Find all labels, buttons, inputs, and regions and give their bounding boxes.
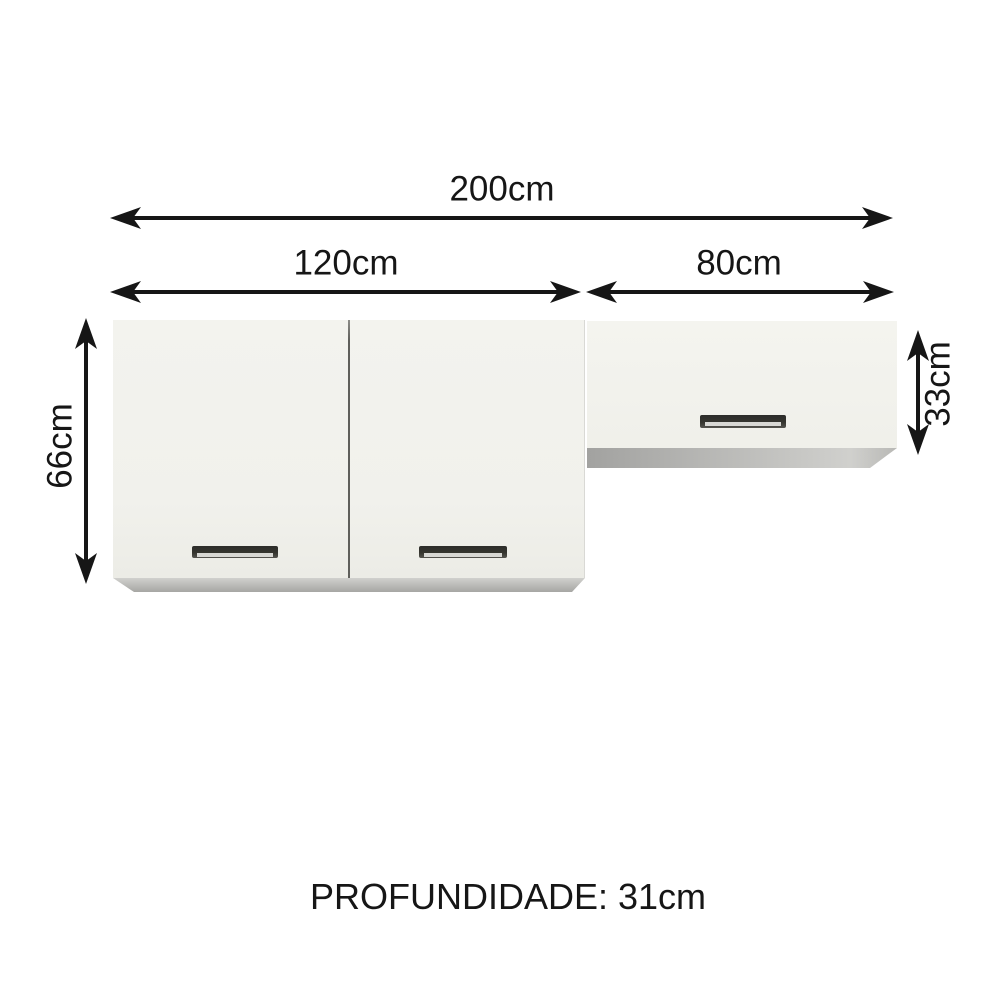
right-cabinet: [587, 321, 897, 468]
left-cabinet: [113, 320, 585, 592]
right-width-arrow: [586, 281, 894, 303]
total-width-label: 200cm: [449, 172, 554, 207]
left-width-label: 120cm: [293, 246, 398, 281]
right-width-label: 80cm: [696, 246, 782, 281]
left-height-label: 66cm: [43, 403, 78, 489]
right-door-handle: [419, 546, 507, 558]
left-width-arrow: [110, 281, 581, 303]
depth-label: PROFUNDIDADE: 31cm: [310, 879, 706, 915]
right-cabinet-bottom-panel: [587, 448, 897, 468]
right-height-label: 33cm: [921, 341, 956, 427]
door-divider: [348, 320, 350, 578]
right-cabinet-door-handle: [700, 415, 786, 428]
left-cabinet-bottom-panel: [113, 578, 585, 592]
right-cabinet-door: [587, 321, 897, 448]
left-door-handle: [192, 546, 278, 558]
total-width-arrow: [110, 207, 893, 229]
product-dimension-diagram: 200cm 120cm 80cm 66cm 33cm PROFUNDIDADE:…: [0, 0, 1000, 1000]
